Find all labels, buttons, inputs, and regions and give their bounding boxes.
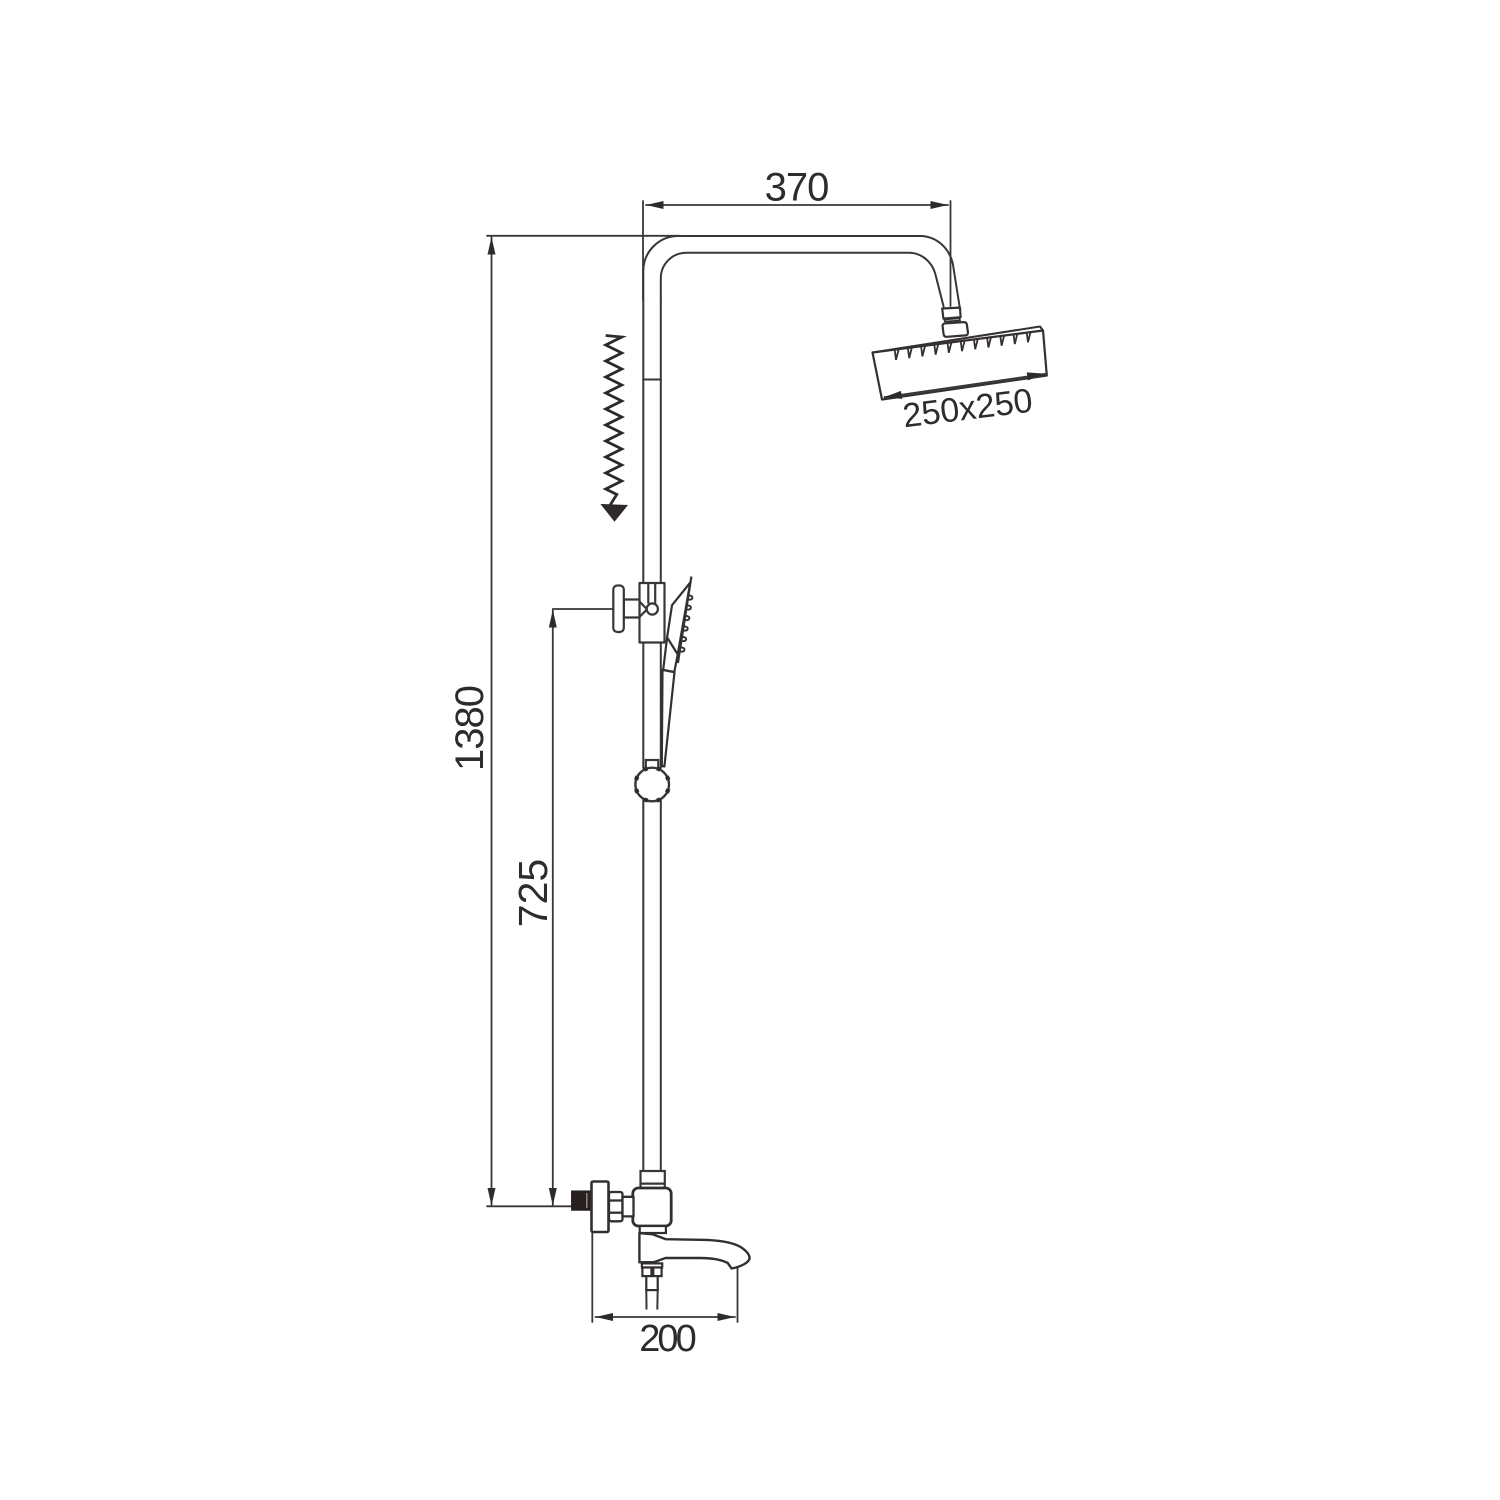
svg-text:725: 725 bbox=[510, 859, 556, 927]
svg-text:200: 200 bbox=[639, 1318, 695, 1360]
svg-text:1380: 1380 bbox=[448, 686, 492, 771]
svg-text:370: 370 bbox=[765, 166, 829, 210]
